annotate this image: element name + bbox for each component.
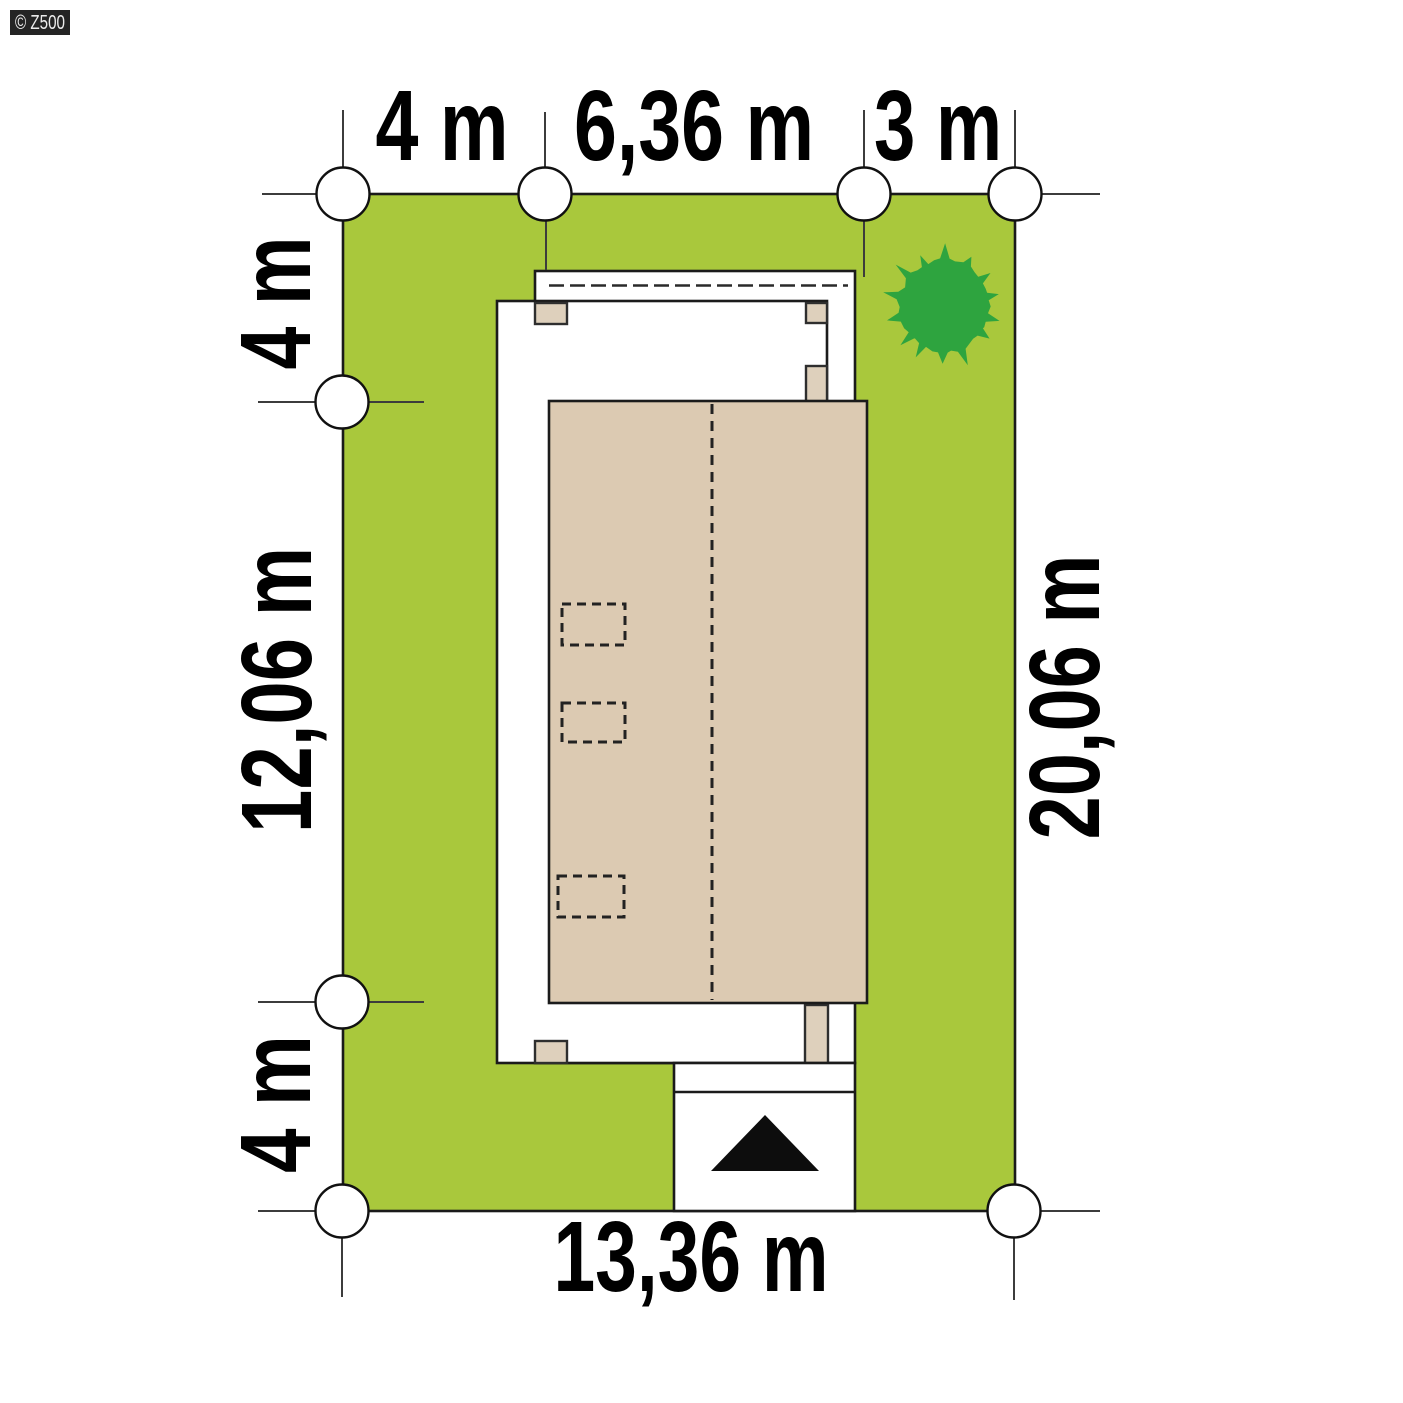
svg-text:4 m: 4 m: [220, 237, 332, 370]
svg-text:© Z500: © Z500: [15, 12, 65, 34]
svg-text:3 m: 3 m: [874, 70, 1002, 182]
svg-text:13,36 m: 13,36 m: [554, 1201, 829, 1313]
svg-text:4 m: 4 m: [220, 1035, 332, 1173]
svg-text:20,06 m: 20,06 m: [1009, 555, 1121, 840]
svg-text:6,36 m: 6,36 m: [574, 70, 814, 182]
svg-text:4 m: 4 m: [376, 70, 509, 182]
svg-text:12,06 m: 12,06 m: [221, 547, 333, 833]
